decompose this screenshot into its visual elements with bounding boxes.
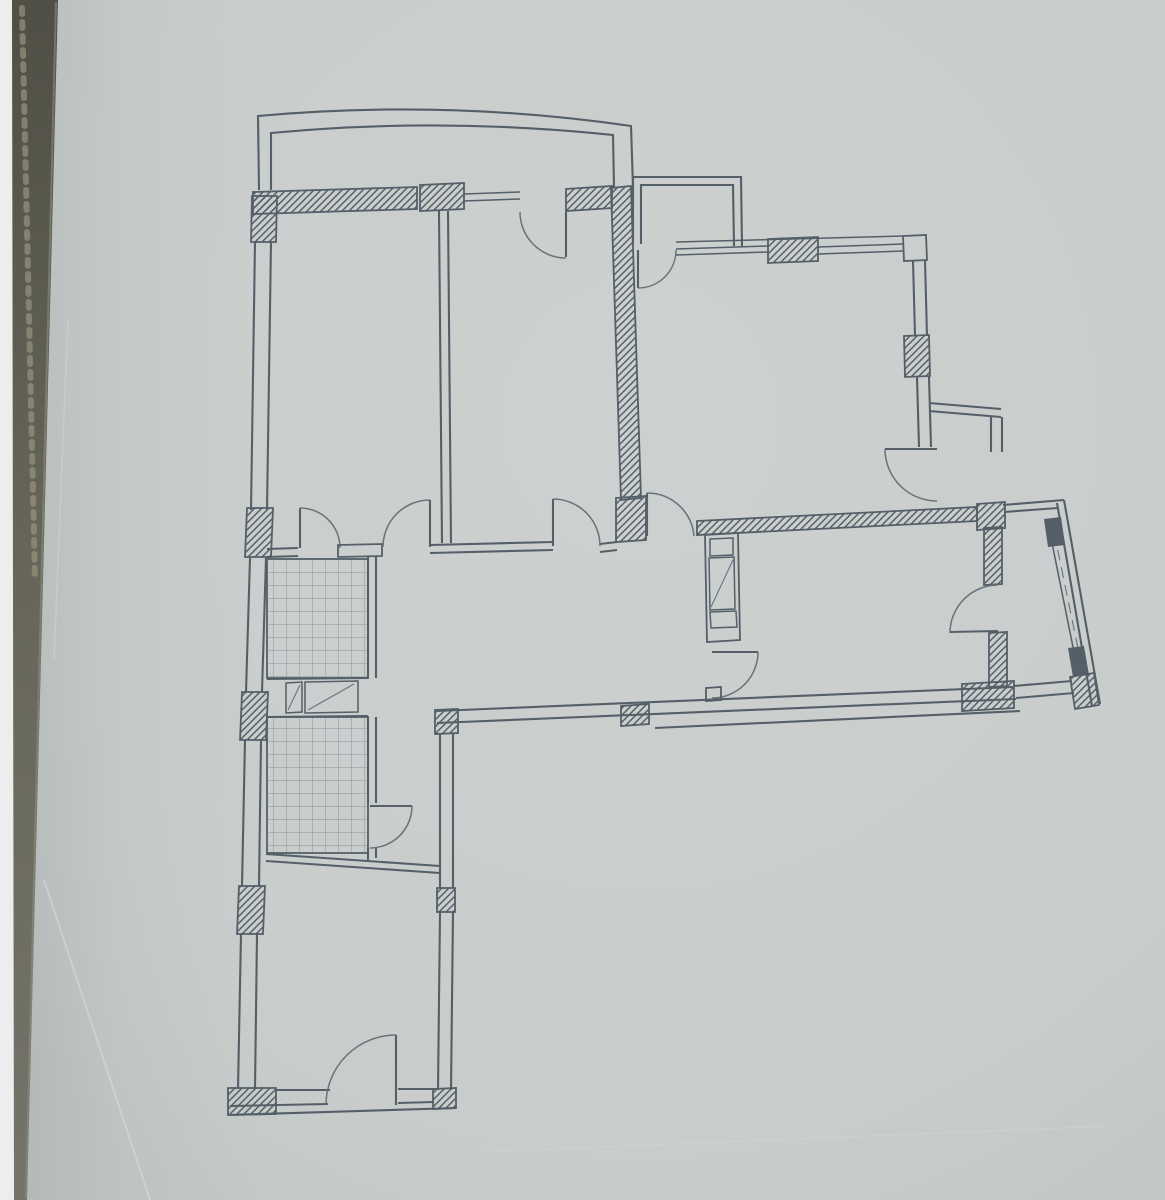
north-wall-pier-hatch [420, 183, 464, 211]
room-bay-wall-hatch-north [984, 527, 1002, 585]
bathroom2-tile-floor [267, 717, 368, 853]
photo-of-floor-plan [0, 0, 1165, 1200]
wing-se-corner-block [433, 1088, 456, 1109]
wing-east-wall-block [437, 888, 455, 912]
bay-se-corner-block [1070, 673, 1099, 709]
north-wall-pier-hatch-east [768, 237, 818, 263]
north-wall-hatch-east [566, 186, 612, 211]
south-wall-block-mid [621, 704, 649, 726]
west-wall-column-3 [240, 692, 268, 740]
south-wall-block-west [435, 709, 458, 734]
center-wall-end-block [616, 496, 646, 542]
east-wall-column [904, 335, 930, 377]
room-bay-wall-hatch-south [989, 632, 1007, 687]
wing-sw-corner-block [228, 1088, 276, 1115]
floorplan-drawing [0, 0, 1165, 1200]
west-wall-column-4 [237, 886, 265, 934]
southeast-corner-column [977, 502, 1005, 530]
bathroom1-south-edge [267, 678, 368, 679]
bathroom1-tile-floor [267, 559, 368, 678]
west-wall-column-top [251, 196, 277, 242]
bay-door-leaf [950, 631, 998, 632]
floorplan-svg [0, 0, 1165, 1200]
